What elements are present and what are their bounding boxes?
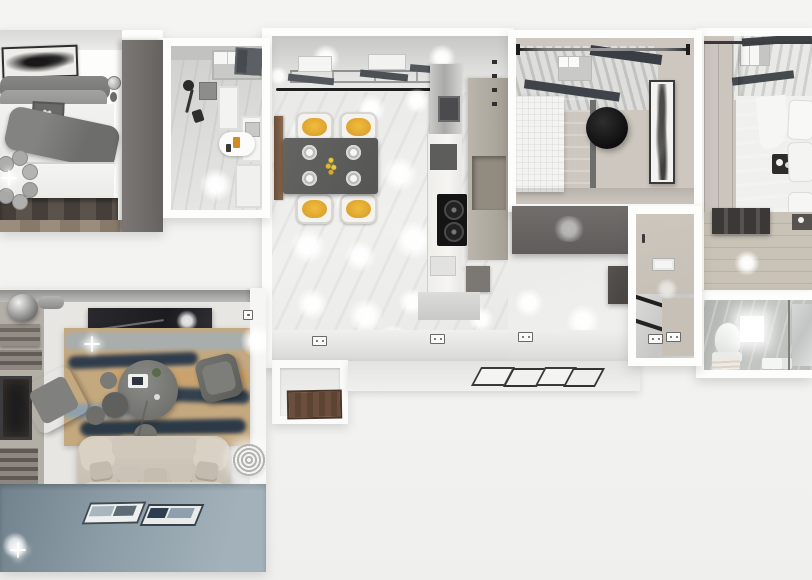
built-in-oven xyxy=(438,96,460,122)
room-bathroom-small xyxy=(163,38,270,218)
floor-light-glow xyxy=(2,532,28,558)
fan-blade xyxy=(22,164,38,180)
room-hallway xyxy=(628,206,702,366)
cylinder-decor xyxy=(38,296,64,309)
ceiling-light-glow xyxy=(514,288,544,318)
lower-cabinet-slab xyxy=(418,292,480,320)
bedside-lamp xyxy=(107,76,121,90)
wardrobe-light-glow xyxy=(552,216,586,242)
sink-counter xyxy=(430,256,456,276)
cooktop-burner xyxy=(444,222,464,242)
bed-pillow xyxy=(787,99,812,140)
dining-table xyxy=(283,138,378,194)
artwork-motif xyxy=(653,84,671,180)
lower-cabinet xyxy=(235,164,262,208)
tray-art-panel xyxy=(167,508,195,518)
tray-cup xyxy=(776,159,783,166)
living-floor xyxy=(0,484,266,572)
foot-bench xyxy=(712,208,770,234)
shower-set xyxy=(179,80,201,124)
room-bathroom-ensuite xyxy=(696,292,812,378)
room-living xyxy=(0,288,266,572)
floor-pouf xyxy=(100,372,117,389)
wall-socket xyxy=(430,334,445,344)
floor-art-tray xyxy=(140,504,205,526)
washbasin-counter xyxy=(219,132,255,156)
ceiling-light-glow xyxy=(348,298,384,334)
place-setting-plate xyxy=(346,171,361,186)
wall-socket xyxy=(648,334,663,344)
light-switch-panel xyxy=(652,258,675,271)
floor-art-tray xyxy=(82,502,147,525)
tray-art-panel xyxy=(113,506,137,516)
firewood-shelf xyxy=(0,350,42,370)
sideboard xyxy=(274,116,283,200)
bed-pillow xyxy=(787,142,812,183)
kitchen-island-block xyxy=(466,266,490,292)
chair-cushion xyxy=(346,118,371,136)
bedside-decor xyxy=(798,217,804,223)
room-bedroom-right xyxy=(696,28,812,296)
place-setting-plate xyxy=(302,171,317,186)
bedside-table xyxy=(104,74,122,108)
place-setting-plate xyxy=(302,145,317,160)
open-shelf-niche xyxy=(472,156,506,210)
ceiling-light-glow xyxy=(290,228,326,264)
room-kitchen-dining xyxy=(262,28,514,368)
mirror-assembly xyxy=(636,294,694,358)
fan-blade xyxy=(12,150,28,166)
skylight-grid xyxy=(558,56,592,81)
bathroom-light-glow xyxy=(199,168,233,202)
cooktop-burner xyxy=(444,200,464,220)
kitchen-bottom-wall xyxy=(272,330,508,363)
doormat xyxy=(287,390,342,420)
toilet xyxy=(712,322,742,362)
bathroom-tile-floor xyxy=(171,46,262,210)
wall-socket xyxy=(243,310,253,320)
glowing-wall-light xyxy=(740,316,764,342)
chair-cushion xyxy=(346,200,371,218)
floor-light-glow xyxy=(734,250,760,276)
table-plant xyxy=(152,368,161,377)
ceiling-fan xyxy=(0,148,38,208)
fan-blade xyxy=(12,194,28,210)
side-table-round xyxy=(102,392,128,418)
bedside-vase xyxy=(110,92,117,102)
ceiling-light-glow xyxy=(344,240,376,272)
tray-art-panel xyxy=(89,506,115,516)
tray-book xyxy=(132,377,143,385)
hallway-interior xyxy=(636,214,694,358)
mirror-panel xyxy=(792,304,812,366)
firewood-shelf xyxy=(0,324,40,346)
chair-cushion xyxy=(302,118,327,136)
skylight-grid xyxy=(740,44,770,66)
apartment-floor-plan xyxy=(0,0,812,580)
ceiling-light-glow xyxy=(296,288,328,320)
bathroom-door xyxy=(218,86,239,130)
ceiling-light-glow xyxy=(404,88,430,114)
hall-wall-panel xyxy=(662,298,694,356)
armchair-cushion xyxy=(201,360,237,396)
table-candle xyxy=(154,394,160,400)
cooktop xyxy=(437,194,467,246)
wall-sparkle xyxy=(84,336,100,352)
ensuite-tile-wall xyxy=(704,300,812,370)
dining-chair xyxy=(340,194,377,224)
basin-tap xyxy=(226,144,231,152)
guest-bed xyxy=(516,96,564,192)
rug-streak xyxy=(80,419,246,437)
towel-stack xyxy=(712,357,741,370)
wardrobe-main-bedroom xyxy=(122,40,163,232)
tall-artwork xyxy=(649,80,675,184)
room-bedroom-main xyxy=(0,30,163,232)
round-black-pendant-seat xyxy=(586,107,628,149)
coffee-table xyxy=(118,360,178,420)
wood-floor xyxy=(0,220,122,232)
corner-light-glow xyxy=(240,324,266,358)
wall-art xyxy=(1,45,78,80)
shower-hose xyxy=(185,89,194,113)
place-setting-plate xyxy=(346,145,361,160)
ceiling-light-glow xyxy=(382,156,418,192)
wall-socket xyxy=(666,332,681,342)
rope-spiral-basket xyxy=(232,444,266,476)
wall-shelf-box xyxy=(199,82,217,100)
wardrobe-guest-bedroom xyxy=(512,206,630,254)
wardrobe-right-bedroom xyxy=(704,44,738,214)
room-bedroom-guest xyxy=(508,30,702,212)
wall-hook xyxy=(642,234,645,243)
armchair-cushion xyxy=(28,375,80,426)
flower-centerpiece xyxy=(324,153,338,177)
guest-bed-blanket xyxy=(558,98,590,190)
guest-bedroom-interior xyxy=(516,38,694,204)
skylight-dark-panel xyxy=(234,47,262,75)
hall-light-glow xyxy=(656,278,678,300)
sphere-decor xyxy=(8,294,38,322)
curtain-rod xyxy=(518,48,690,51)
floor-shadow xyxy=(516,188,694,204)
sofa-back-band xyxy=(112,436,196,458)
curtain-rod-finial xyxy=(686,44,690,55)
dining-chair xyxy=(296,194,333,224)
wall-socket xyxy=(312,336,327,346)
entry-recess xyxy=(272,360,348,424)
kitchen-floor xyxy=(272,36,508,363)
sofa-pillow xyxy=(89,461,113,483)
chair-cushion xyxy=(302,200,327,218)
tray-art-panel xyxy=(147,508,169,518)
sofa-pillow xyxy=(195,461,219,483)
terrace-strip xyxy=(348,361,640,391)
cabinet-handles xyxy=(492,60,497,112)
curtain-rod-finial xyxy=(516,44,520,55)
shower-glass-screen xyxy=(788,300,790,370)
skylight-pane xyxy=(368,54,406,70)
floor-pouf xyxy=(86,406,105,425)
wall-socket xyxy=(518,332,533,342)
wall-art-motif xyxy=(6,49,75,75)
skylight-pane xyxy=(298,56,332,72)
counter-inset-panel xyxy=(430,144,457,170)
bedroom-right-interior xyxy=(704,36,812,290)
table-tray xyxy=(128,374,148,388)
toiletry-bottle xyxy=(233,137,240,148)
fan-hub-glint xyxy=(1,170,17,186)
